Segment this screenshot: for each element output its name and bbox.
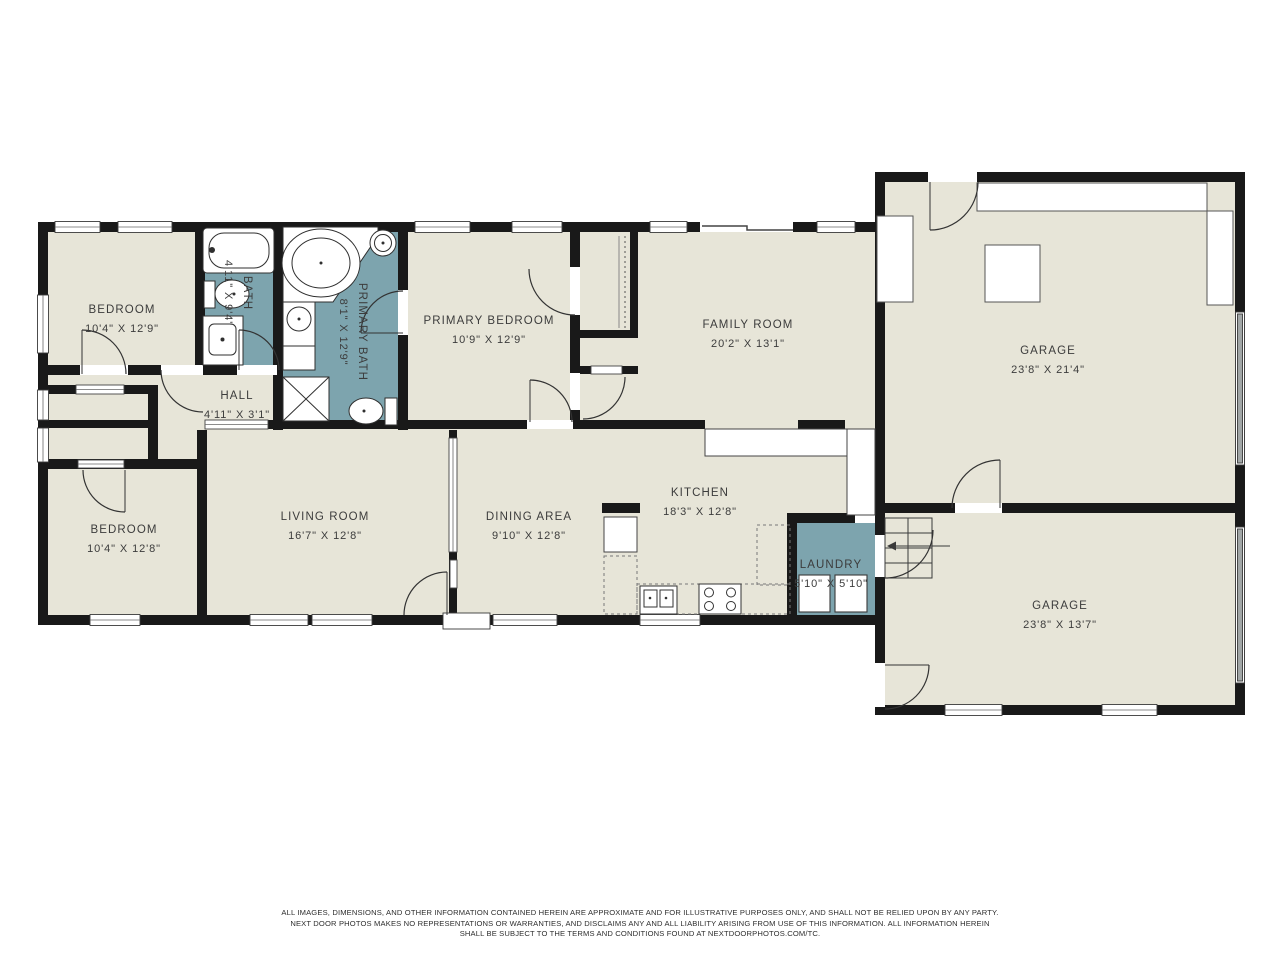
room-label-laundry: LAUNDRY 5'10" X 5'10" [794, 556, 868, 594]
garage-niche [877, 216, 913, 302]
room-label-garage-top: GARAGE 23'8" X 21'4" [1011, 342, 1085, 380]
primary-toilet [385, 398, 397, 425]
shower [283, 377, 329, 421]
disclaimer: ALL IMAGES, DIMENSIONS, AND OTHER INFORM… [0, 908, 1280, 940]
room-label-family-room: FAMILY ROOM 20'2" X 13'1" [703, 316, 794, 354]
room-label-primary-bedroom: PRIMARY BEDROOM 10'9" X 12'9" [423, 312, 554, 350]
garage-counter-right [1207, 211, 1233, 305]
room-label-bedroom-1: BEDROOM 10'4" X 12'9" [85, 301, 159, 339]
disclaimer-line-3: SHALL BE SUBJECT TO THE TERMS AND CONDIT… [0, 929, 1280, 940]
floor-plan-page: BEDROOM 10'4" X 12'9" BATH 4'11" X 9'4" … [0, 0, 1280, 960]
kitchen-sink [640, 586, 677, 614]
stove [699, 584, 741, 614]
room-label-garage-bottom: GARAGE 23'8" X 13'7" [1023, 597, 1097, 635]
disclaimer-line-1: ALL IMAGES, DIMENSIONS, AND OTHER INFORM… [0, 908, 1280, 919]
room-label-kitchen: KITCHEN 18'3" X 12'8" [663, 484, 737, 522]
toilet [204, 281, 215, 308]
garage-worktable [985, 245, 1040, 302]
garage-counter-top [977, 183, 1207, 211]
room-label-hall: HALL 4'11" X 3'1" [204, 387, 270, 425]
room-label-living-room: LIVING ROOM 16'7" X 12'8" [281, 508, 370, 546]
disclaimer-line-2: NEXT DOOR PHOTOS MAKES NO REPRESENTATION… [0, 919, 1280, 930]
room-label-primary-bath: PRIMARY BATH 8'1" X 12'9" [333, 283, 371, 381]
room-label-bedroom-2: BEDROOM 10'4" X 12'8" [87, 521, 161, 559]
room-label-bath: BATH 4'11" X 9'4" [218, 260, 256, 326]
room-label-dining-area: DINING AREA 9'10" X 12'8" [486, 508, 572, 546]
floor-plan-drawing [0, 0, 1280, 960]
